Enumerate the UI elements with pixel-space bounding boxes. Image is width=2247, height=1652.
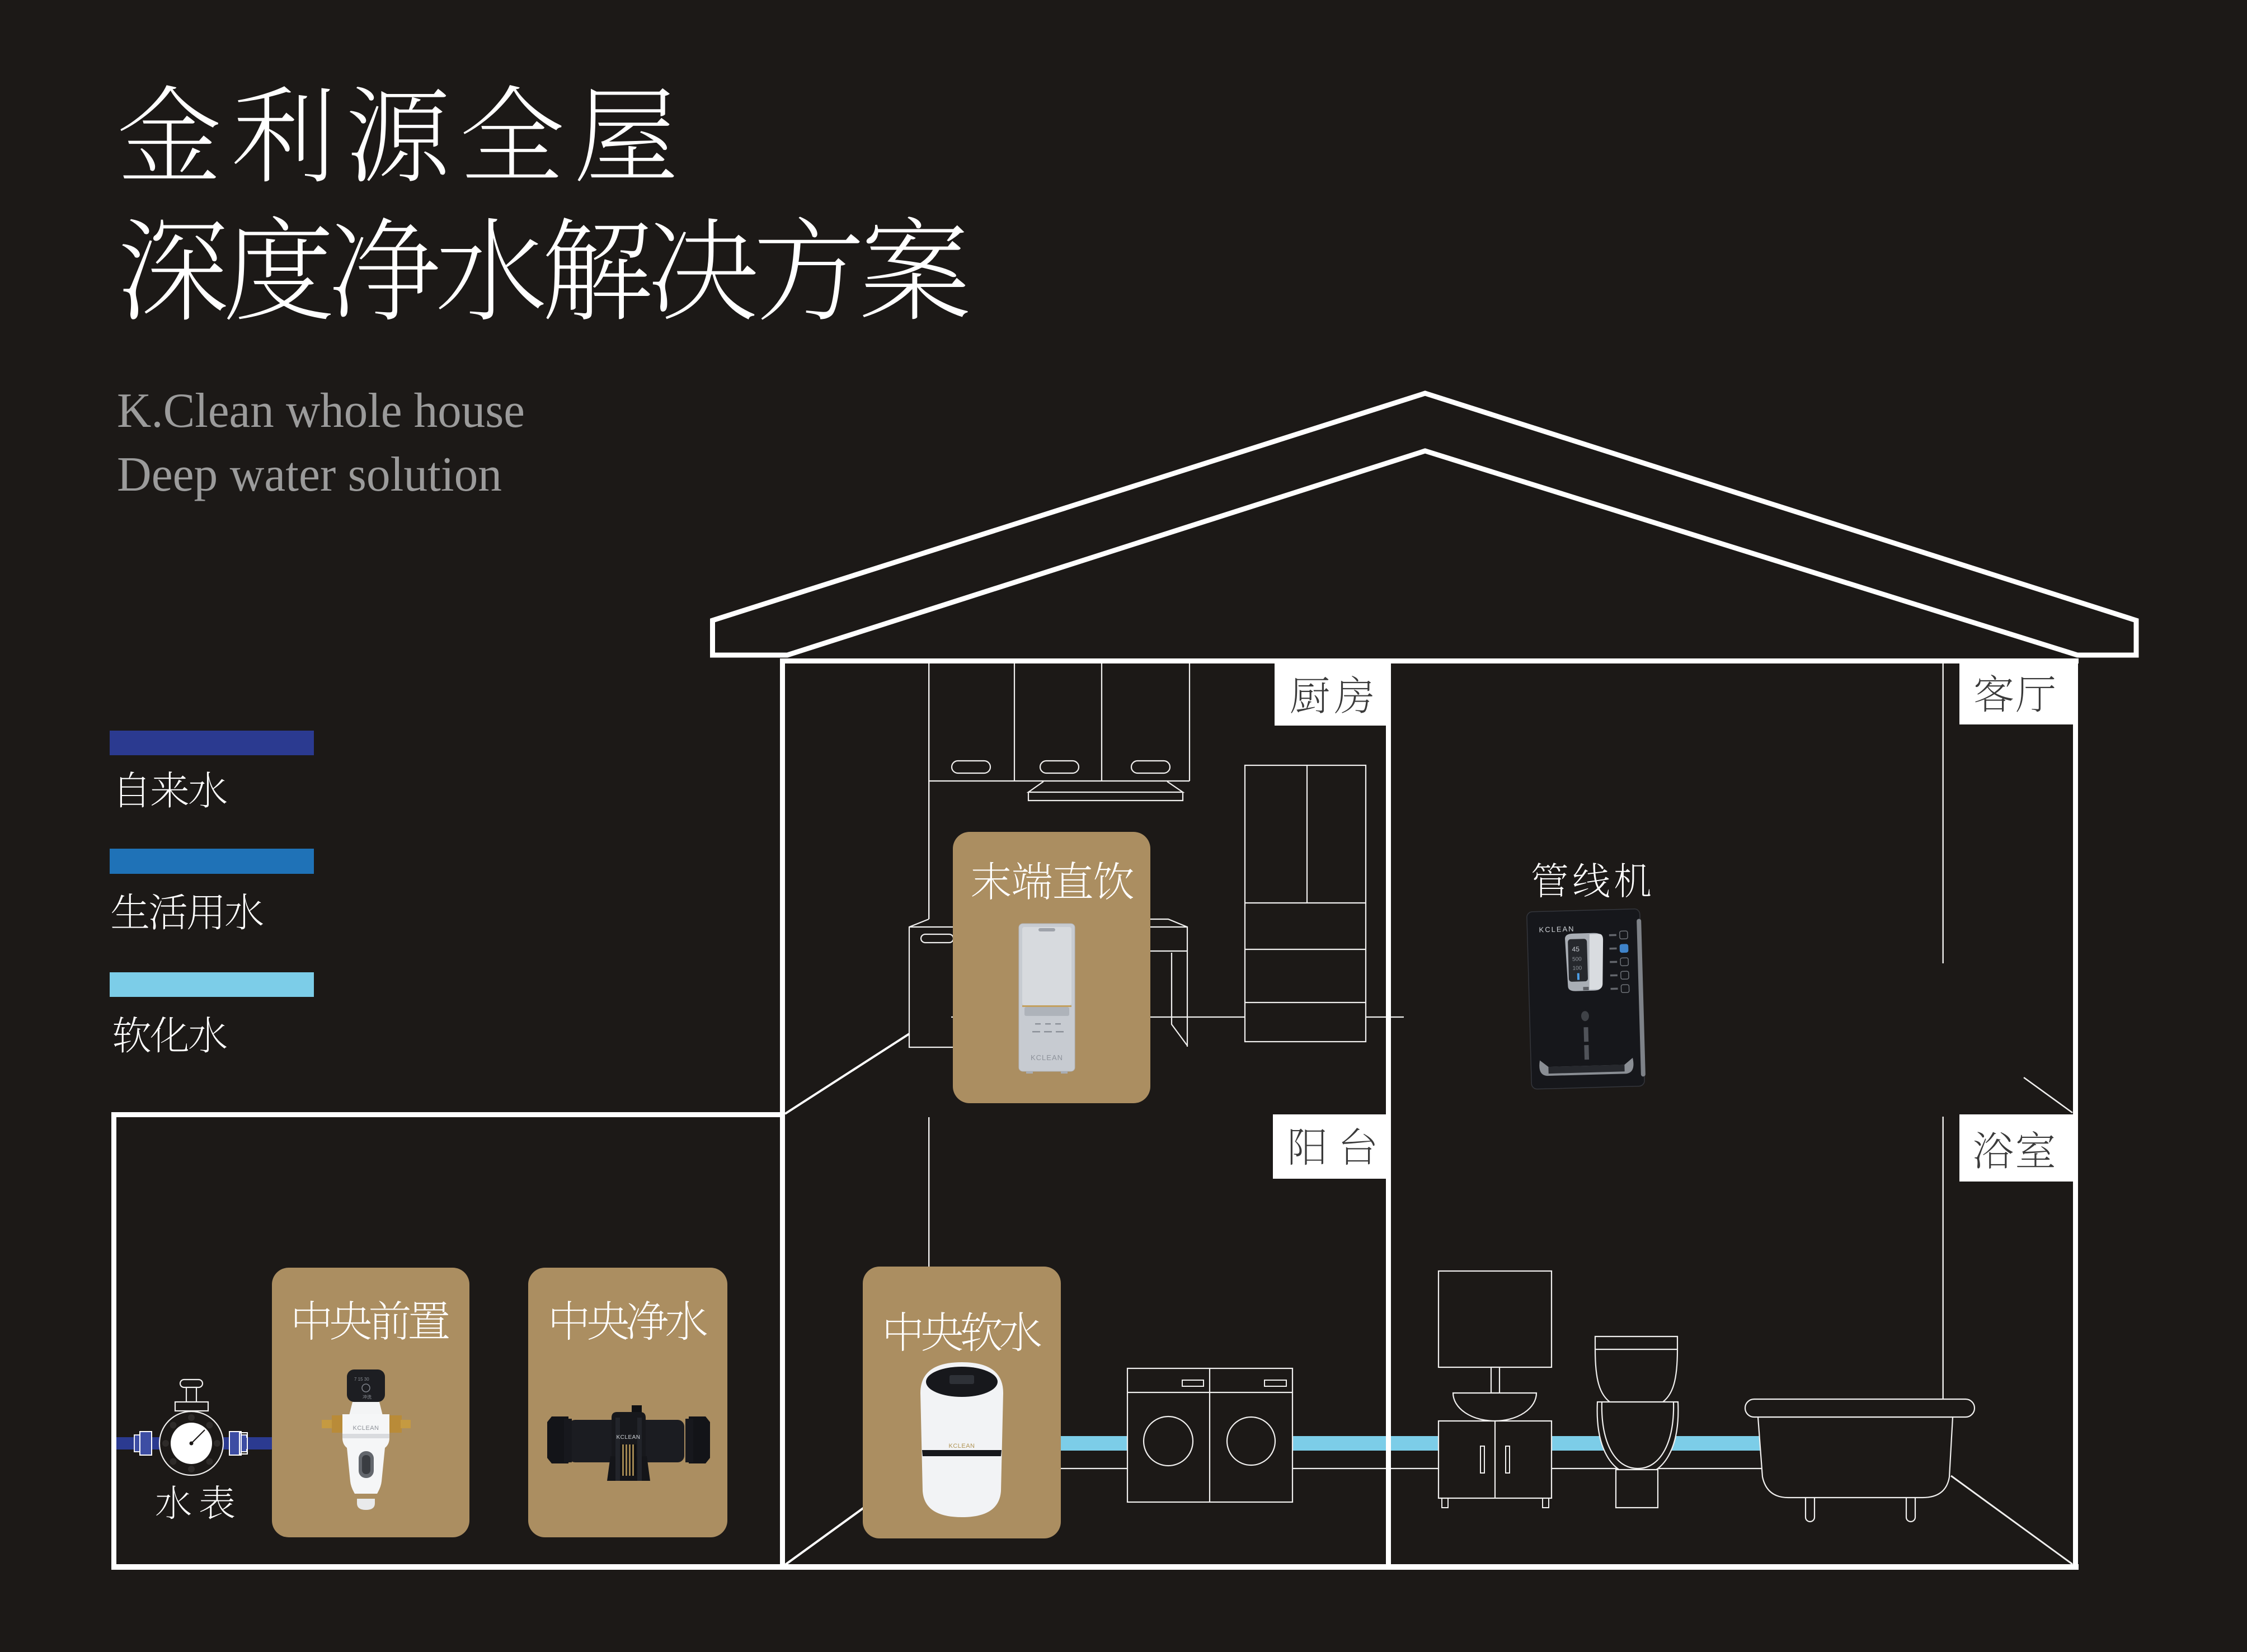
svg-text:KCLEAN: KCLEAN (352, 1425, 379, 1432)
svg-text:Deep water solution: Deep water solution (117, 448, 502, 502)
svg-text:500: 500 (1572, 956, 1582, 962)
svg-text:K.Clean whole house: K.Clean whole house (117, 384, 525, 438)
svg-text:KCLEAN: KCLEAN (1539, 925, 1574, 934)
svg-text:KCLEAN: KCLEAN (1031, 1053, 1063, 1062)
svg-text:100: 100 (1572, 965, 1582, 971)
svg-text:冲洗: 冲洗 (363, 1394, 372, 1400)
svg-text:7 15 30: 7 15 30 (354, 1377, 369, 1382)
svg-text:KCLEAN: KCLEAN (948, 1443, 975, 1449)
svg-text:KCLEAN: KCLEAN (616, 1434, 640, 1441)
svg-text:45: 45 (1572, 945, 1580, 953)
